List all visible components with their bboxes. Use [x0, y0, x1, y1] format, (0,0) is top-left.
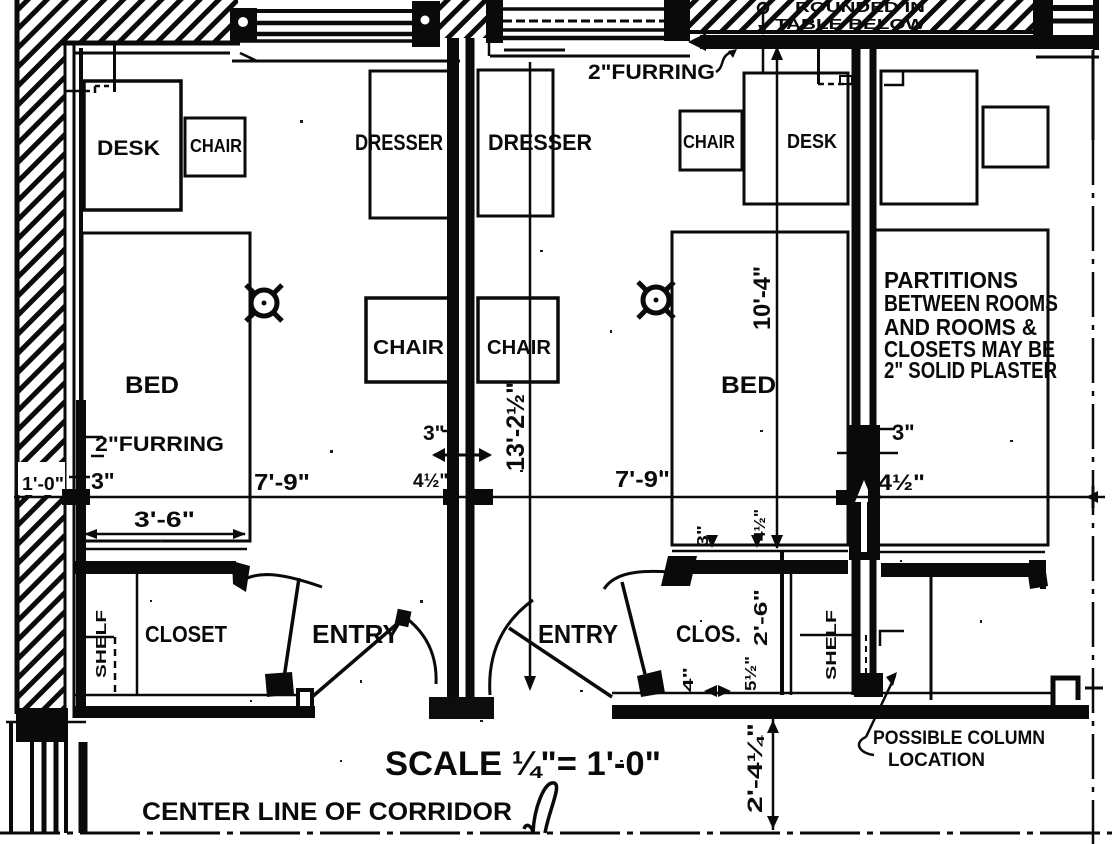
svg-text:4½": 4½" [413, 471, 448, 492]
svg-text:POSSIBLE COLUMN: POSSIBLE COLUMN [873, 728, 1045, 749]
svg-text:LOCATION: LOCATION [888, 750, 985, 771]
svg-text:ENTRY: ENTRY [538, 619, 618, 649]
svg-text:2'-4¼": 2'-4¼" [744, 723, 767, 813]
svg-text:3": 3" [91, 468, 115, 494]
svg-text:13'-2½": 13'-2½" [502, 382, 530, 471]
svg-text:SHELF: SHELF [93, 610, 110, 678]
svg-text:DESK: DESK [787, 131, 837, 153]
svg-text:7'-9": 7'-9" [615, 466, 670, 492]
svg-text:ROUNDED IN: ROUNDED IN [795, 0, 925, 16]
svg-text:1'-0": 1'-0" [22, 474, 64, 494]
svg-text:DRESSER: DRESSER [488, 130, 592, 155]
svg-text:DESK: DESK [97, 137, 160, 160]
svg-text:5½": 5½" [743, 656, 760, 691]
svg-text:BETWEEN ROOMS: BETWEEN ROOMS [884, 290, 1058, 316]
svg-text:2" SOLID PLASTER: 2" SOLID PLASTER [884, 357, 1057, 383]
svg-text:7'-9": 7'-9" [254, 469, 310, 495]
svg-text:CHAIR: CHAIR [190, 136, 242, 156]
svg-text:2"FURRING: 2"FURRING [588, 61, 715, 84]
svg-text:SCALE ¼"= 1'-0": SCALE ¼"= 1'-0" [385, 745, 661, 783]
svg-text:SHELF: SHELF [823, 610, 840, 680]
svg-text:CHAIR: CHAIR [683, 132, 735, 152]
svg-text:2"FURRING: 2"FURRING [95, 433, 224, 456]
svg-text:3": 3" [423, 422, 445, 445]
svg-text:4": 4" [680, 667, 697, 692]
svg-text:DRESSER: DRESSER [355, 130, 443, 155]
svg-text:2'-6": 2'-6" [751, 589, 771, 646]
svg-text:CENTER LINE OF CORRIDOR: CENTER LINE OF CORRIDOR [142, 798, 512, 826]
svg-text:3'-6": 3'-6" [134, 507, 195, 532]
svg-text:3": 3" [892, 420, 915, 445]
svg-text:10'-4": 10'-4" [749, 266, 776, 330]
svg-text:BED: BED [721, 372, 776, 399]
svg-text:CHAIR: CHAIR [373, 337, 445, 359]
svg-text:CHAIR: CHAIR [487, 337, 552, 359]
svg-text:BED: BED [125, 372, 179, 399]
svg-text:CLOS.: CLOS. [676, 621, 741, 648]
svg-text:CLOSET: CLOSET [145, 621, 227, 647]
svg-text:4½": 4½" [878, 470, 925, 495]
